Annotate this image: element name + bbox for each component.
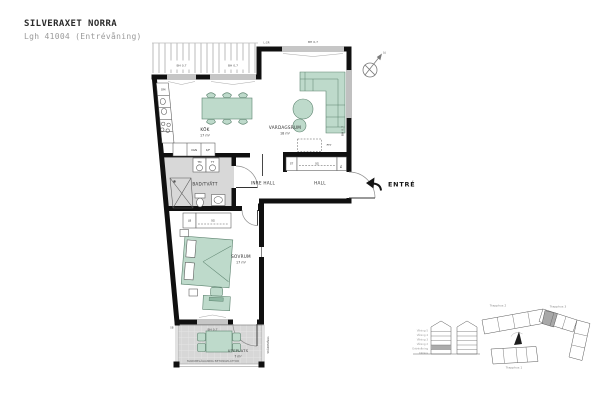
round-table-large — [293, 99, 313, 119]
floor-label-2: Våning 3 — [417, 337, 429, 342]
floor-label-5: Källare — [419, 351, 428, 355]
floor-label-4: Entrévåning — [412, 346, 428, 351]
kitchen-counter: DM UGN K/F — [156, 83, 215, 156]
cleaning-closet-label: ST — [290, 162, 294, 166]
sill-height-label-4: BH 0,7 — [207, 328, 217, 332]
sb-label: SB — [170, 326, 174, 330]
wardrobe-bedroom-label: SG — [211, 219, 215, 223]
sill-height-label-right: BH 0,7 — [341, 126, 345, 136]
bedroom-closets: LB SG — [183, 213, 231, 228]
dishwasher-label: DM — [161, 88, 166, 92]
stairwell-3-label: Trapphus 3 — [549, 305, 567, 309]
patio-label: UTEPLATS — [228, 349, 249, 353]
desk-chair — [210, 287, 222, 296]
desk — [203, 287, 231, 311]
stairwell-2-label: Trapphus 2 — [489, 304, 507, 308]
bedroom-label: SOVRUM — [231, 254, 251, 259]
livingroom-window-right — [347, 70, 352, 118]
hall-label: HALL — [314, 181, 326, 186]
sill-height-label-2: BH 0,7 — [228, 64, 238, 68]
linen-closet-label: LB — [188, 219, 191, 223]
wardrobe-hall-label: SG — [315, 162, 319, 166]
floorplan-canvas: SILVERAXET NORRA Lgh 41004 (Entrévåning) — [0, 0, 600, 400]
adjacent-building-hatch — [152, 43, 258, 73]
fty-unit: FTY — [298, 139, 332, 152]
inner-hall-label: INRE HALL — [251, 181, 276, 186]
hall-closets: ST SG EL — [286, 157, 347, 171]
kitchen-sink — [160, 98, 165, 104]
bedroom-area: 17 m² — [236, 261, 247, 265]
kitchen-window-2 — [210, 75, 256, 80]
window-type-label: L:GR — [263, 41, 269, 45]
site-north-arrow — [514, 332, 522, 346]
dining-table — [202, 93, 252, 125]
oven-label: UGN — [191, 148, 197, 152]
fty-label: FTY — [327, 143, 332, 147]
kitchen-window-1 — [167, 75, 196, 80]
washing-machine-label: TM — [197, 160, 203, 164]
bedroom-window — [197, 320, 228, 325]
elevation-building-2 — [457, 321, 477, 354]
sill-height-label-1: BH 0,7 — [176, 64, 186, 68]
ground-surface-note: MARKBELÄGGNING BETONGPLATTOR — [187, 358, 239, 363]
site-plan-key: Trapphus 2 Trapphus 3 Trapphus 1 — [482, 304, 590, 370]
north-label: N — [383, 51, 386, 55]
building-elevation-key: Våning 5 Våning 4 Våning 3 Våning 2 Entr… — [412, 321, 480, 355]
livingroom-area: 18 m² — [280, 132, 291, 136]
floor-label-0: Våning 5 — [417, 328, 429, 333]
bedside-table-1 — [180, 230, 189, 237]
double-bed — [181, 236, 233, 288]
livingroom-window-top — [282, 47, 344, 52]
screen-wall-label: SKÄRMVÄGG — [265, 336, 270, 353]
dryer-label: TT — [210, 160, 215, 164]
floor-label-1: Våning 4 — [417, 332, 429, 337]
bathroom-label: BAD/TVÄTT — [192, 182, 218, 187]
entre-label: ENTRÉ — [388, 180, 415, 189]
stairwell-1-label: Trapphus 1 — [505, 366, 523, 370]
bedroom-door — [242, 210, 258, 226]
highlighted-floor — [431, 345, 451, 350]
bedside-table-2 — [189, 289, 198, 296]
patio-post-right — [259, 362, 265, 368]
fridge-freezer-label: K/F — [206, 148, 211, 152]
patio-post-left — [174, 362, 180, 368]
sill-height-label-3: BH 0,7 — [308, 40, 318, 44]
electrical-cabinet-label: EL — [339, 164, 343, 168]
kitchen-label: KÖK — [200, 127, 209, 132]
floor-label-3: Våning 2 — [417, 341, 429, 346]
floorplan-drawing: DM UGN K/F — [0, 0, 600, 400]
kitchen-area: 17 m² — [200, 134, 211, 138]
livingroom-label: VARDAGSRUM — [269, 125, 301, 130]
north-compass-icon: N — [363, 51, 386, 77]
bedroom-window-small — [259, 247, 264, 257]
washbasin — [212, 195, 226, 206]
